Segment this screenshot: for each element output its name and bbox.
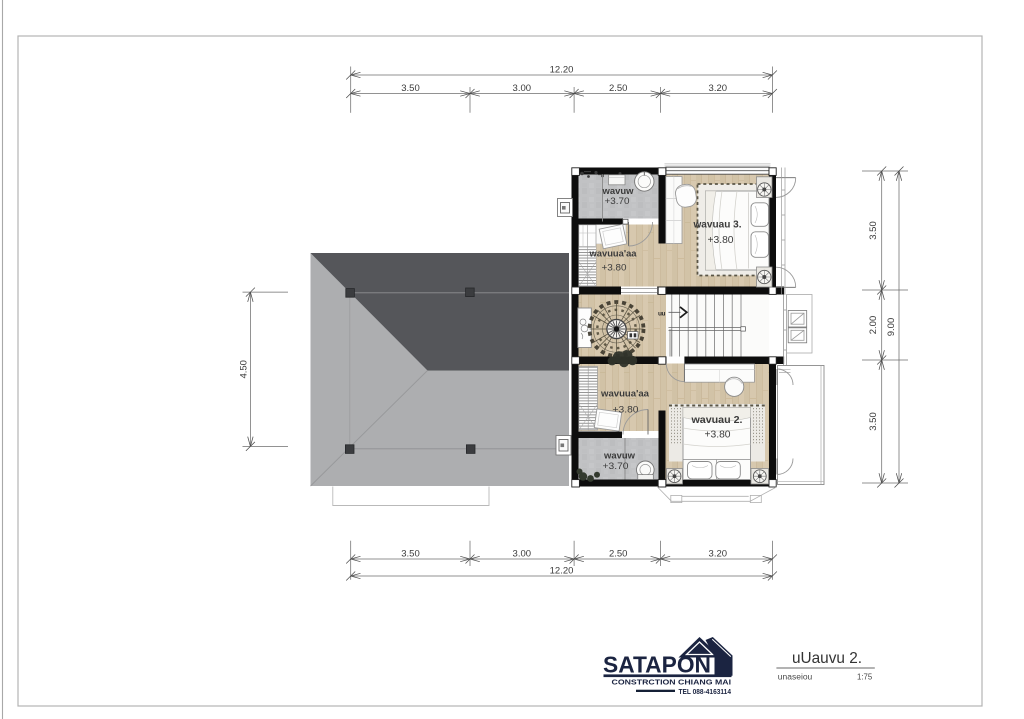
svg-text:wavuua'aa: wavuua'aa	[600, 389, 650, 400]
svg-text:3.00: 3.00	[513, 83, 532, 94]
svg-text:3.20: 3.20	[709, 549, 728, 560]
svg-text:3.50: 3.50	[868, 412, 879, 431]
svg-text:wavuau 2.: wavuau 2.	[690, 414, 742, 426]
svg-text:TEL 088-4163114: TEL 088-4163114	[679, 689, 732, 696]
svg-text:2.00: 2.00	[868, 316, 879, 335]
svg-text:uUauvu 2.: uUauvu 2.	[792, 650, 862, 667]
svg-text:4.50: 4.50	[239, 360, 250, 379]
svg-text:+3.80: +3.80	[602, 263, 627, 274]
svg-text:12.20: 12.20	[550, 65, 574, 76]
svg-text:+3.80: +3.80	[613, 405, 639, 416]
svg-text:3.50: 3.50	[868, 221, 879, 240]
svg-text:wavuw: wavuw	[603, 451, 636, 462]
svg-text:3.20: 3.20	[709, 83, 728, 94]
svg-text:wavuau 3.: wavuau 3.	[693, 219, 742, 231]
svg-text:3.50: 3.50	[401, 549, 420, 560]
svg-text:12.20: 12.20	[550, 566, 574, 577]
svg-text:2.50: 2.50	[609, 549, 628, 560]
svg-text:uu: uu	[658, 311, 666, 318]
svg-text:2.50: 2.50	[609, 83, 628, 94]
svg-text:+3.70: +3.70	[605, 196, 630, 207]
svg-text:unaseiou: unaseiou	[778, 672, 813, 681]
svg-text:CONSTRCTION CHIANG MAI: CONSTRCTION CHIANG MAI	[612, 678, 732, 687]
svg-text:wavuua'aa: wavuua'aa	[589, 249, 638, 260]
svg-text:+3.80: +3.80	[705, 430, 731, 441]
svg-text:1:75: 1:75	[857, 673, 873, 682]
svg-text:3.50: 3.50	[401, 83, 420, 94]
svg-text:+3.70: +3.70	[603, 461, 629, 472]
svg-text:+3.80: +3.80	[708, 235, 734, 246]
svg-text:SATAPON: SATAPON	[603, 652, 711, 678]
svg-text:3.00: 3.00	[513, 549, 532, 560]
svg-text:9.00: 9.00	[886, 318, 897, 337]
